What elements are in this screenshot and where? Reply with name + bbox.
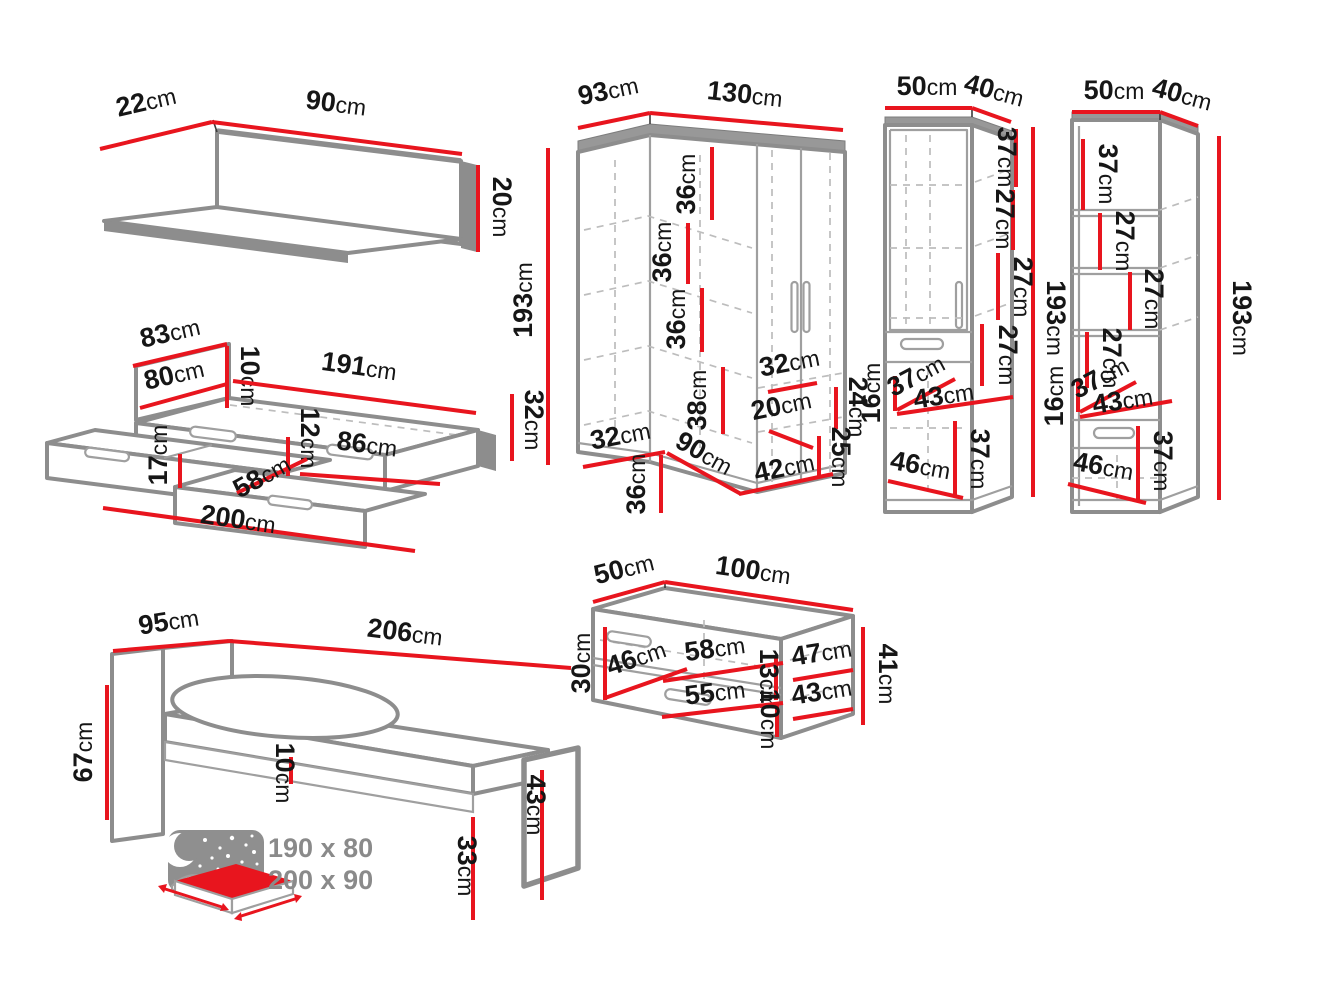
dim-label: 43cm xyxy=(521,775,551,836)
dim-label: 37cm xyxy=(1093,144,1123,205)
dim-label: 67cm xyxy=(68,722,98,783)
dim-label: 100cm xyxy=(714,550,793,590)
mattress-size-icon: 190 x 80 200 x 90 xyxy=(158,830,373,921)
dim-line xyxy=(578,113,650,128)
dim-label: 22cm xyxy=(113,80,179,123)
dim-label: 27cm xyxy=(1008,257,1038,318)
dim-label: 50cm xyxy=(591,546,657,590)
dim-label: 10cm xyxy=(270,743,300,804)
dim-label: 16cm xyxy=(856,363,886,424)
dim-label: 30cm xyxy=(566,633,596,694)
dim-label: 40cm xyxy=(961,68,1027,113)
dim-line xyxy=(100,122,212,149)
dim-label: 193cm xyxy=(1227,280,1257,356)
wardrobe-door-handle xyxy=(792,282,798,332)
dim-label: 10cm xyxy=(755,689,785,750)
dim-label: 206cm xyxy=(366,613,445,652)
dim-label: 16cm xyxy=(1039,366,1069,427)
cabinet-drawer-handle-slot xyxy=(901,339,943,349)
dim-label: 50cm xyxy=(1084,75,1145,105)
dim-label: 27cm xyxy=(1110,211,1140,272)
diagram-canvas: 190 x 80 200 x 90 22cm90cm20cm83cm80cm10… xyxy=(0,0,1320,990)
cabinet-drawer-handle-slot xyxy=(1094,428,1134,438)
dim-label: 17cm xyxy=(143,425,173,486)
dim-label: 95cm xyxy=(136,602,201,641)
dim-label: 36cm xyxy=(621,454,651,515)
dim-label: 36cm xyxy=(661,289,691,350)
dim-label: 20cm xyxy=(487,177,517,238)
dim-label: 191cm xyxy=(320,346,399,386)
dim-label: 40cm xyxy=(1149,72,1215,117)
dim-label: 83cm xyxy=(137,311,203,354)
dim-label: 37cm xyxy=(992,127,1022,188)
mattress-size-1: 190 x 80 xyxy=(268,833,373,863)
dim-label: 193cm xyxy=(1041,280,1071,356)
wall-shelf-drawing xyxy=(104,120,477,263)
furniture-dimension-diagram: 190 x 80 200 x 90 22cm90cm20cm83cm80cm10… xyxy=(0,0,1320,990)
dim-label: 93cm xyxy=(575,69,641,111)
wardrobe-door-handle xyxy=(804,282,810,332)
mattress-size-2: 200 x 90 xyxy=(268,865,373,895)
dim-label: 36cm xyxy=(671,154,701,215)
dim-label: 32cm xyxy=(519,390,549,451)
dim-label: 25cm xyxy=(826,427,856,488)
dim-label: 90cm xyxy=(304,84,368,121)
dim-label: 130cm xyxy=(706,75,784,113)
dim-label: 12cm xyxy=(295,408,325,469)
dim-label: 36cm xyxy=(647,222,677,283)
dim-label: 27cm xyxy=(990,189,1020,250)
dim-label: 38cm xyxy=(682,370,712,431)
dim-label: 50cm xyxy=(897,71,958,101)
dim-label: 193cm xyxy=(508,262,538,338)
dim-label: 37cm xyxy=(1148,431,1178,492)
dim-label: 27cm xyxy=(1139,269,1169,330)
dim-label: 41cm xyxy=(873,644,903,705)
dim-label: 10cm xyxy=(235,346,265,407)
cabinet-door-handle xyxy=(956,282,962,328)
dim-label: 33cm xyxy=(452,836,482,897)
dim-label: 27cm xyxy=(993,325,1023,386)
dim-label: 37cm xyxy=(965,429,995,490)
